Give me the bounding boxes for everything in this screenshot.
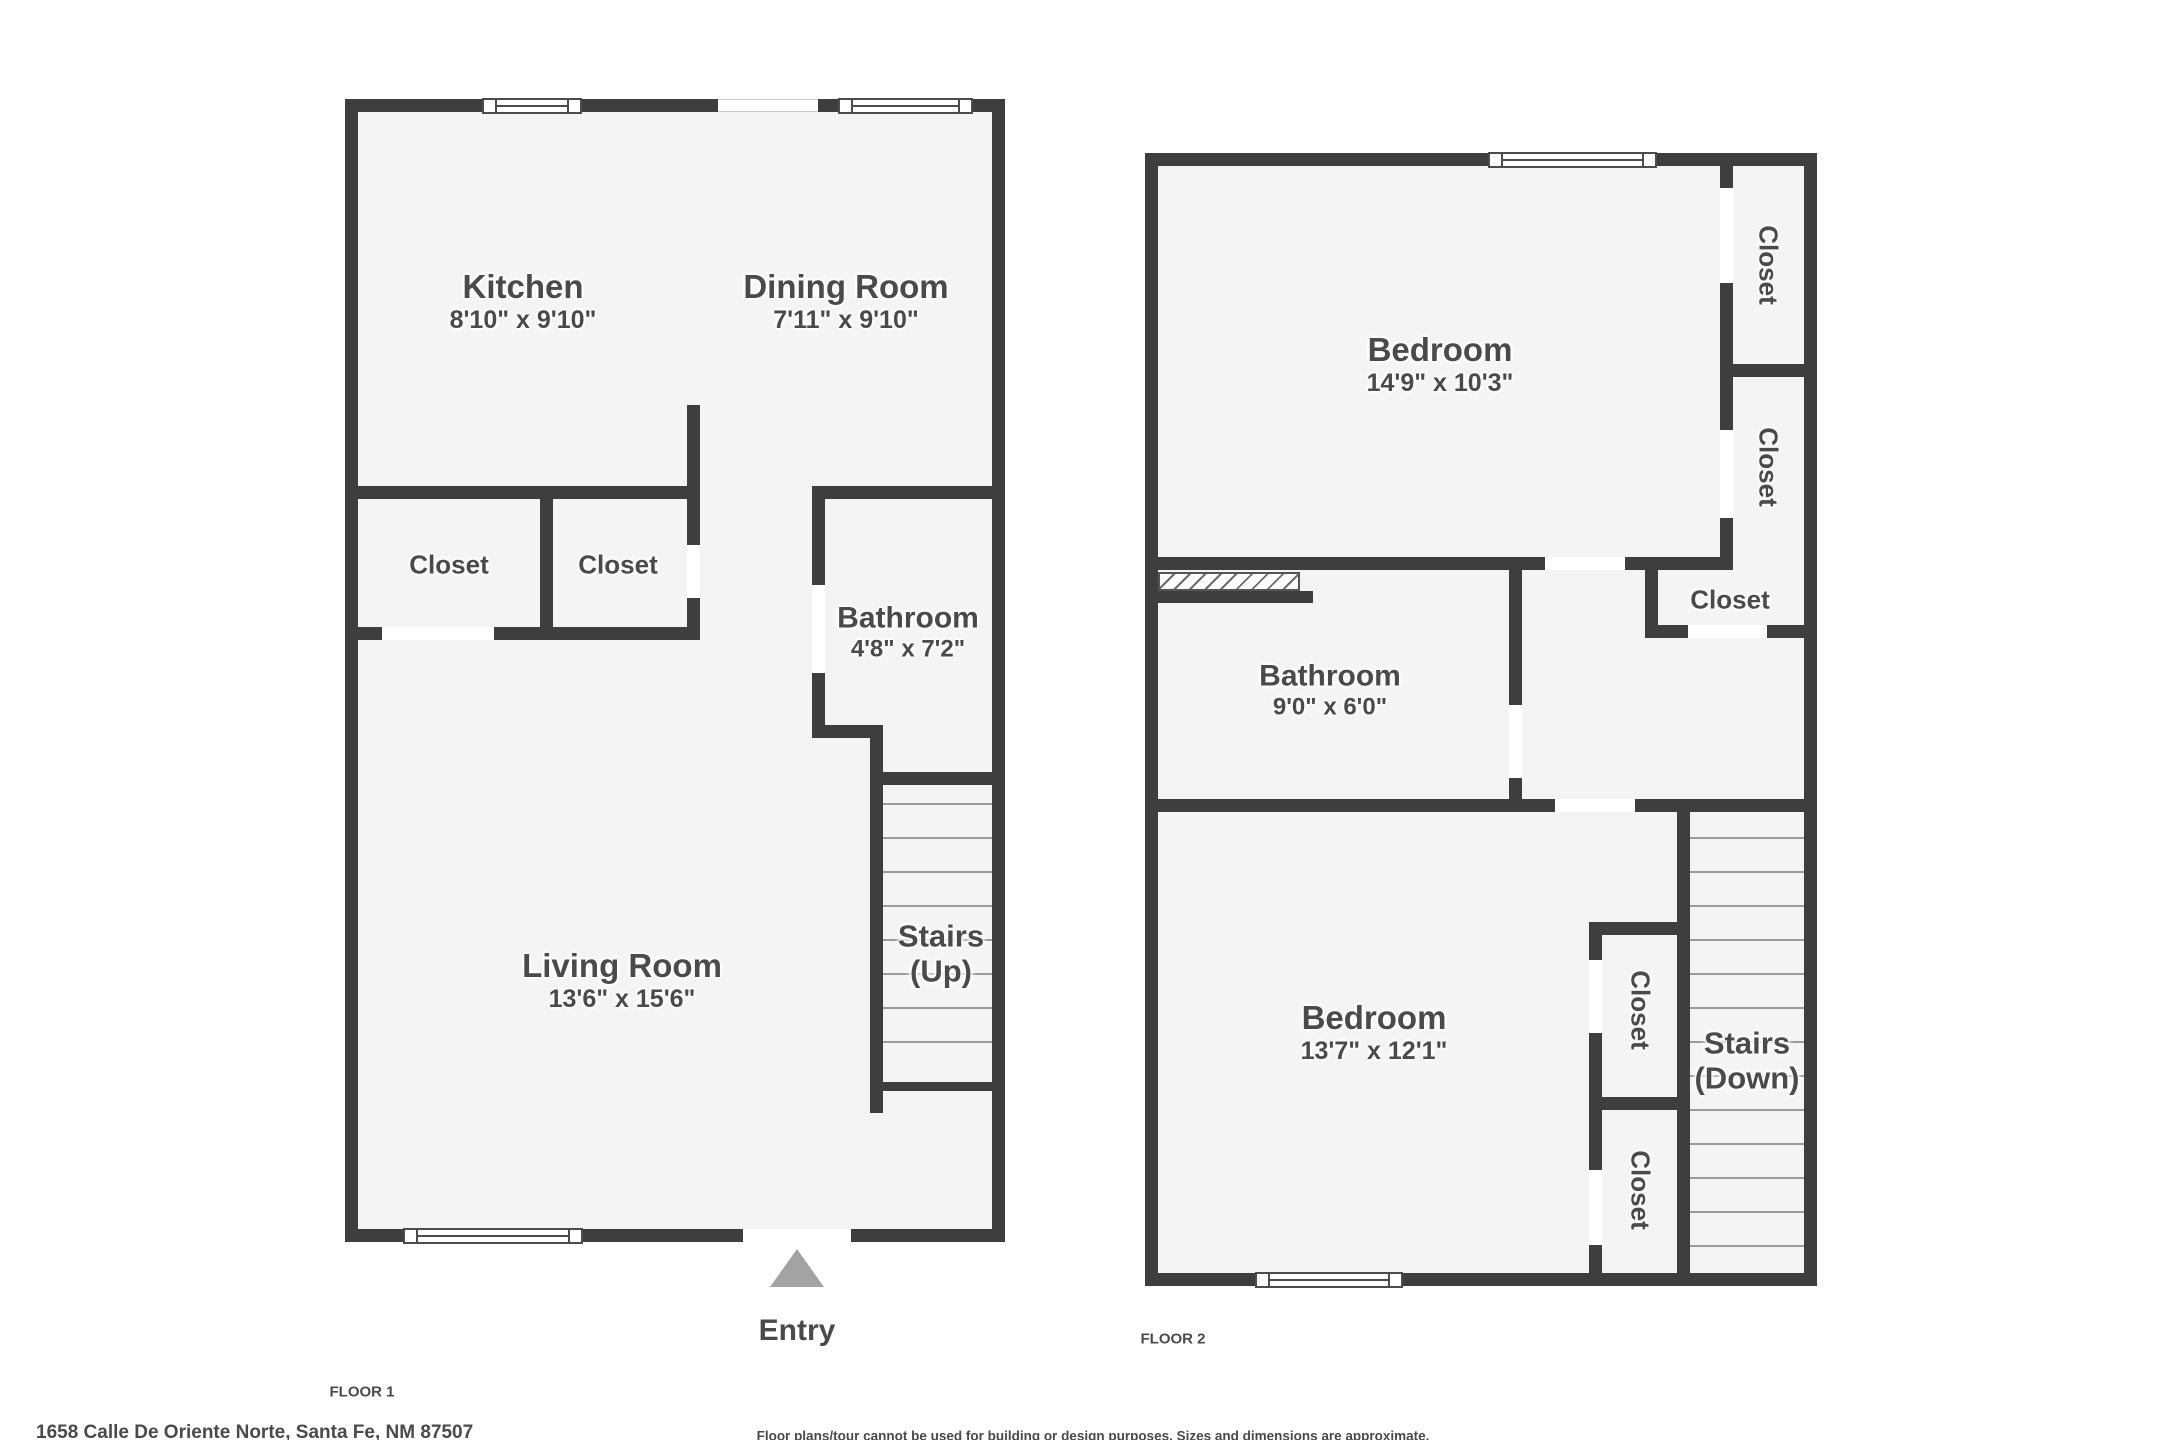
wall [1522,799,1555,812]
room-label-bathroom: Bathroom 4'8" x 7'2" [837,601,979,662]
room-dimensions: 4'8" x 7'2" [837,635,979,663]
stairs-name: Stairs [898,919,984,954]
wall [992,99,1005,1242]
room-label-bedroom-top: Bedroom 14'9" x 10'3" [1367,332,1514,398]
floor-plan-page: Kitchen 8'10" x 9'10" Dining Room 7'11" … [0,0,2160,1440]
door-opening [1688,625,1767,638]
window-cap [958,100,960,112]
room-label-bedroom-bottom: Bedroom 13'7" x 12'1" [1301,1000,1448,1066]
wall [1635,799,1817,812]
room-dimensions: 14'9" x 10'3" [1367,369,1514,398]
wall [1589,1097,1690,1110]
room-label-closet-3: Closet [1690,585,1769,614]
room-dimensions: 13'6" x 15'6" [522,985,722,1014]
room-label-bathroom2: Bathroom 9'0" x 6'0" [1259,659,1401,720]
stairs-down-label: Stairs (Down) [1694,1026,1799,1095]
wall [345,99,358,1242]
door-opening [1555,799,1635,812]
room-label-closet-a: Closet [409,550,488,579]
window [1255,1272,1403,1288]
room-name: Closet [409,550,488,579]
wall [1677,812,1690,1273]
wall [1804,153,1817,1286]
door-opening [1589,960,1602,1033]
door-opening [812,585,825,673]
room-name: Bedroom [1301,1000,1448,1037]
stairs-name: Stairs [1694,1026,1799,1061]
room-name: Closet [1690,585,1769,614]
disclaimer-text: Floor plans/tour cannot be used for buil… [757,1429,1430,1440]
door-opening [1545,557,1625,570]
room-label-closet-2: Closet [1753,427,1784,506]
room-dimensions: 8'10" x 9'10" [450,306,597,335]
wall [687,405,700,499]
window-cap [1388,1274,1390,1286]
room-label-living-room: Living Room 13'6" x 15'6" [522,948,722,1014]
entry-arrow-icon [770,1249,824,1287]
window-cap [567,100,569,112]
room-name: Living Room [522,948,722,985]
stairs-up-label: Stairs (Up) [898,919,984,988]
door-opening [382,627,494,640]
room-name: Kitchen [450,269,597,306]
window [1488,152,1657,168]
window [838,98,973,114]
wall [1589,922,1690,935]
room-dimensions: 7'11" x 9'10" [743,306,948,335]
room-label-closet-4: Closet [1625,970,1656,1049]
room-label-dining-room: Dining Room 7'11" x 9'10" [743,269,948,335]
floor1-stairs-bottom-edge [883,1082,992,1091]
wall [1145,799,1522,812]
wall [1145,557,1545,570]
wall-opening [718,99,818,112]
door-opening [1589,1170,1602,1245]
room-name: Dining Room [743,269,948,306]
wall [812,725,883,738]
window [482,98,582,114]
entry-opening [743,1229,851,1242]
room-name: Bathroom [837,601,979,635]
fixture-hatch [1158,572,1300,591]
wall [812,486,1005,499]
entry-label: Entry [759,1314,836,1348]
door-opening [1720,430,1733,518]
door-opening [1509,705,1522,778]
room-name: Closet [578,550,657,579]
room-name: Bedroom [1367,332,1514,369]
wall [1145,153,1158,1286]
room-dimensions: 9'0" x 6'0" [1259,693,1401,721]
wall [1720,364,1817,377]
room-label-closet-5: Closet [1625,1150,1656,1229]
room-label-kitchen: Kitchen 8'10" x 9'10" [450,269,597,335]
wall [540,499,553,640]
stairs-direction: (Up) [898,954,984,989]
wall [1145,1273,1817,1286]
door-opening [1720,188,1733,283]
window-cap [568,1230,570,1242]
window [403,1228,583,1244]
door-opening [687,545,700,598]
floor2-tag: FLOOR 2 [1140,1331,1205,1348]
room-label-closet-b: Closet [578,550,657,579]
window-cap [1642,154,1644,166]
wall [553,627,700,640]
wall [345,486,700,499]
wall [1145,153,1817,166]
property-address: 1658 Calle De Oriente Norte, Santa Fe, N… [36,1422,473,1440]
wall [1625,557,1733,570]
floor1-tag: FLOOR 1 [329,1384,394,1401]
wall [870,738,883,1113]
wall [883,772,1005,785]
wall [1158,591,1313,603]
stairs-direction: (Down) [1694,1061,1799,1096]
room-name: Bathroom [1259,659,1401,693]
room-dimensions: 13'7" x 12'1" [1301,1037,1448,1066]
room-label-closet-1: Closet [1753,225,1784,304]
